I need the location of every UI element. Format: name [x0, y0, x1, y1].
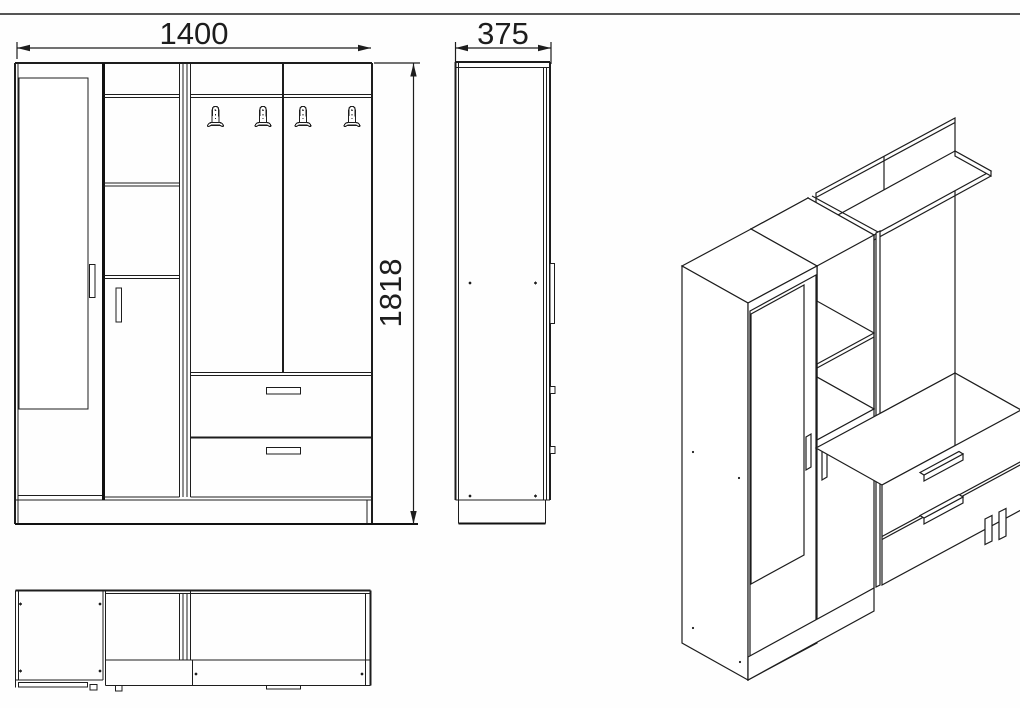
- width-dimension: 1400: [17, 16, 371, 59]
- drawer-handle: [267, 388, 301, 395]
- front-mirror-door: [18, 78, 104, 496]
- coat-hook-icon: [344, 107, 360, 127]
- door-handle-plan: [116, 686, 123, 692]
- coat-hook-icon: [255, 107, 271, 127]
- technical-drawing-canvas: 1400 375 1818: [0, 0, 1020, 708]
- drawer-handle: [267, 448, 301, 455]
- drawer-handle-profile: [550, 447, 555, 454]
- coat-hook-icon: [295, 107, 311, 127]
- door-handle-profile: [550, 264, 555, 324]
- isometric-view: [682, 118, 1020, 680]
- depth-dimension-label: 375: [477, 16, 529, 51]
- iso-door-handle: [806, 434, 811, 470]
- door-handle-plan: [90, 685, 97, 691]
- iso-mirror: [751, 285, 804, 584]
- iso-leg: [985, 516, 992, 545]
- iso-mirror-cabinet: [682, 229, 817, 680]
- door-handle: [90, 265, 96, 298]
- drawer-handle-plan: [267, 686, 301, 690]
- side-view: [456, 62, 556, 524]
- drawing-svg: 1400 375 1818: [0, 0, 1020, 708]
- drawer-handle-profile: [550, 387, 555, 394]
- front-drawers: [191, 373, 373, 498]
- front-view: [15, 63, 418, 524]
- front-middle-column: [104, 63, 191, 497]
- depth-dimension: 375: [456, 16, 552, 64]
- iso-leg: [999, 509, 1006, 540]
- mirror-door-plan: [19, 683, 88, 688]
- mirror-panel: [19, 78, 88, 409]
- width-dimension-label: 1400: [160, 16, 229, 51]
- coat-hook-icon: [208, 107, 224, 127]
- front-hook-panel: [191, 63, 373, 373]
- top-view: [16, 591, 371, 692]
- height-dimension-label: 1818: [373, 259, 408, 328]
- door-handle: [116, 288, 122, 322]
- height-dimension: 1818: [373, 63, 420, 524]
